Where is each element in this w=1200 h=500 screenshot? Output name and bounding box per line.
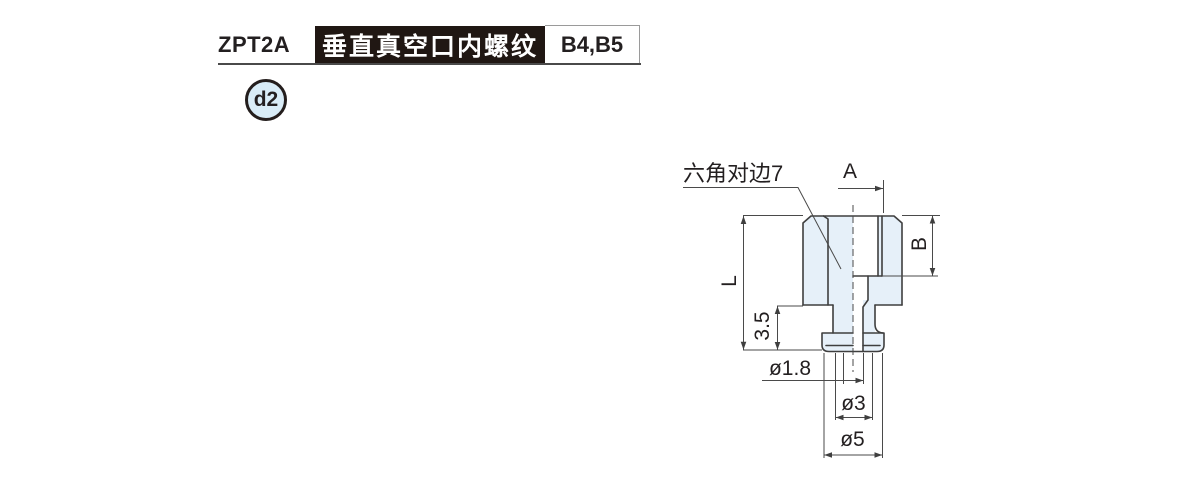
arrow-dia5-right [875,452,883,458]
dim-35-label: 3.5 [751,311,774,340]
arrow-a-right [875,186,883,192]
dia-5-label: ø5 [840,428,865,451]
dim-a-line [838,180,884,213]
product-title-bar: 垂直真空口内螺纹 [315,26,545,64]
arrow-35-bottom [775,342,781,350]
arrow-l-top [741,216,747,224]
arrow-dia3-left [836,415,844,421]
thread-bore [853,216,878,276]
dim-l-label: L [718,275,741,287]
header-rule [218,63,641,65]
model-code: ZPT2A [218,26,290,64]
arrow-l-bottom [741,342,747,350]
variant-badge: d2 [245,79,287,121]
arrow-b-bottom [930,268,936,276]
hex-note-label: 六角对边7 [683,161,783,186]
catalog-page: ZPT2A 垂直真空口内螺纹 B4,B5 d2 [0,0,1200,500]
arrow-dia5-left [824,452,832,458]
arrow-dia18 [856,378,864,384]
small-bore [853,300,863,351]
arrow-35-top [775,306,781,314]
technical-drawing: 六角对边7 A B L 3.5 ø1.8 ø3 ø5 [640,140,1000,480]
dim-b-label: B [908,237,931,251]
dia-3-label: ø3 [841,392,866,415]
dim-a-label: A [843,160,857,183]
bore-recess [853,276,868,300]
arrow-b-top [930,216,936,224]
size-codes: B4,B5 [545,25,640,64]
arrow-dia3-right [865,415,873,421]
product-title: 垂直真空口内螺纹 [322,27,538,63]
dia-18-label: ø1.8 [769,357,811,380]
variant-badge-label: d2 [254,88,279,112]
